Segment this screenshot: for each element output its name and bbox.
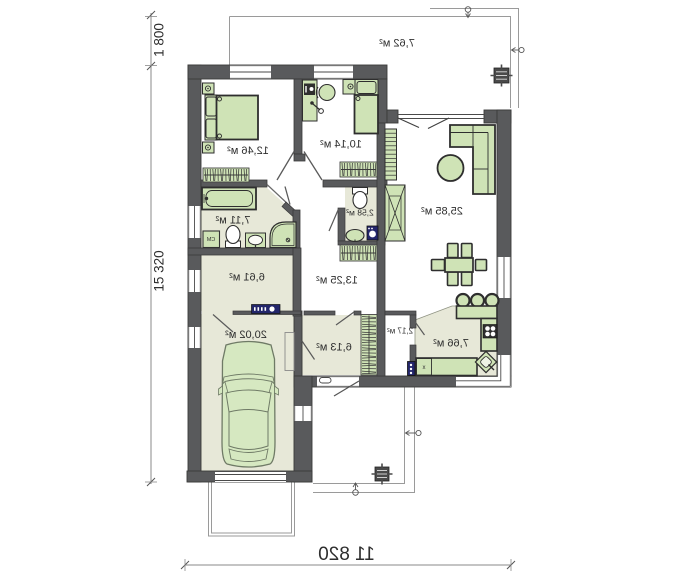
- svg-text:2,58 м²: 2,58 м²: [346, 207, 374, 217]
- svg-text:7,66 м²: 7,66 м²: [433, 338, 469, 350]
- svg-text:6,61 м²: 6,61 м²: [229, 272, 265, 284]
- svg-text:11 820: 11 820: [318, 544, 375, 565]
- svg-text:6,13 м²: 6,13 м²: [316, 342, 352, 354]
- svg-text:10,14 м²: 10,14 м²: [320, 139, 362, 151]
- svg-text:2,17 м²: 2,17 м²: [387, 327, 413, 336]
- svg-text:7,62 м²: 7,62 м²: [379, 38, 415, 50]
- svg-text:СМ: СМ: [206, 237, 215, 243]
- svg-text:25,85 м²: 25,85 м²: [421, 206, 463, 218]
- svg-text:7,11 м²: 7,11 м²: [215, 215, 250, 227]
- svg-text:20,02 м²: 20,02 м²: [225, 329, 267, 341]
- svg-text:x: x: [423, 365, 426, 371]
- svg-text:15 320: 15 320: [151, 250, 166, 291]
- svg-text:12,46 м²: 12,46 м²: [227, 145, 269, 157]
- svg-text:1 800: 1 800: [151, 23, 166, 57]
- svg-text:13,25 м²: 13,25 м²: [316, 275, 358, 287]
